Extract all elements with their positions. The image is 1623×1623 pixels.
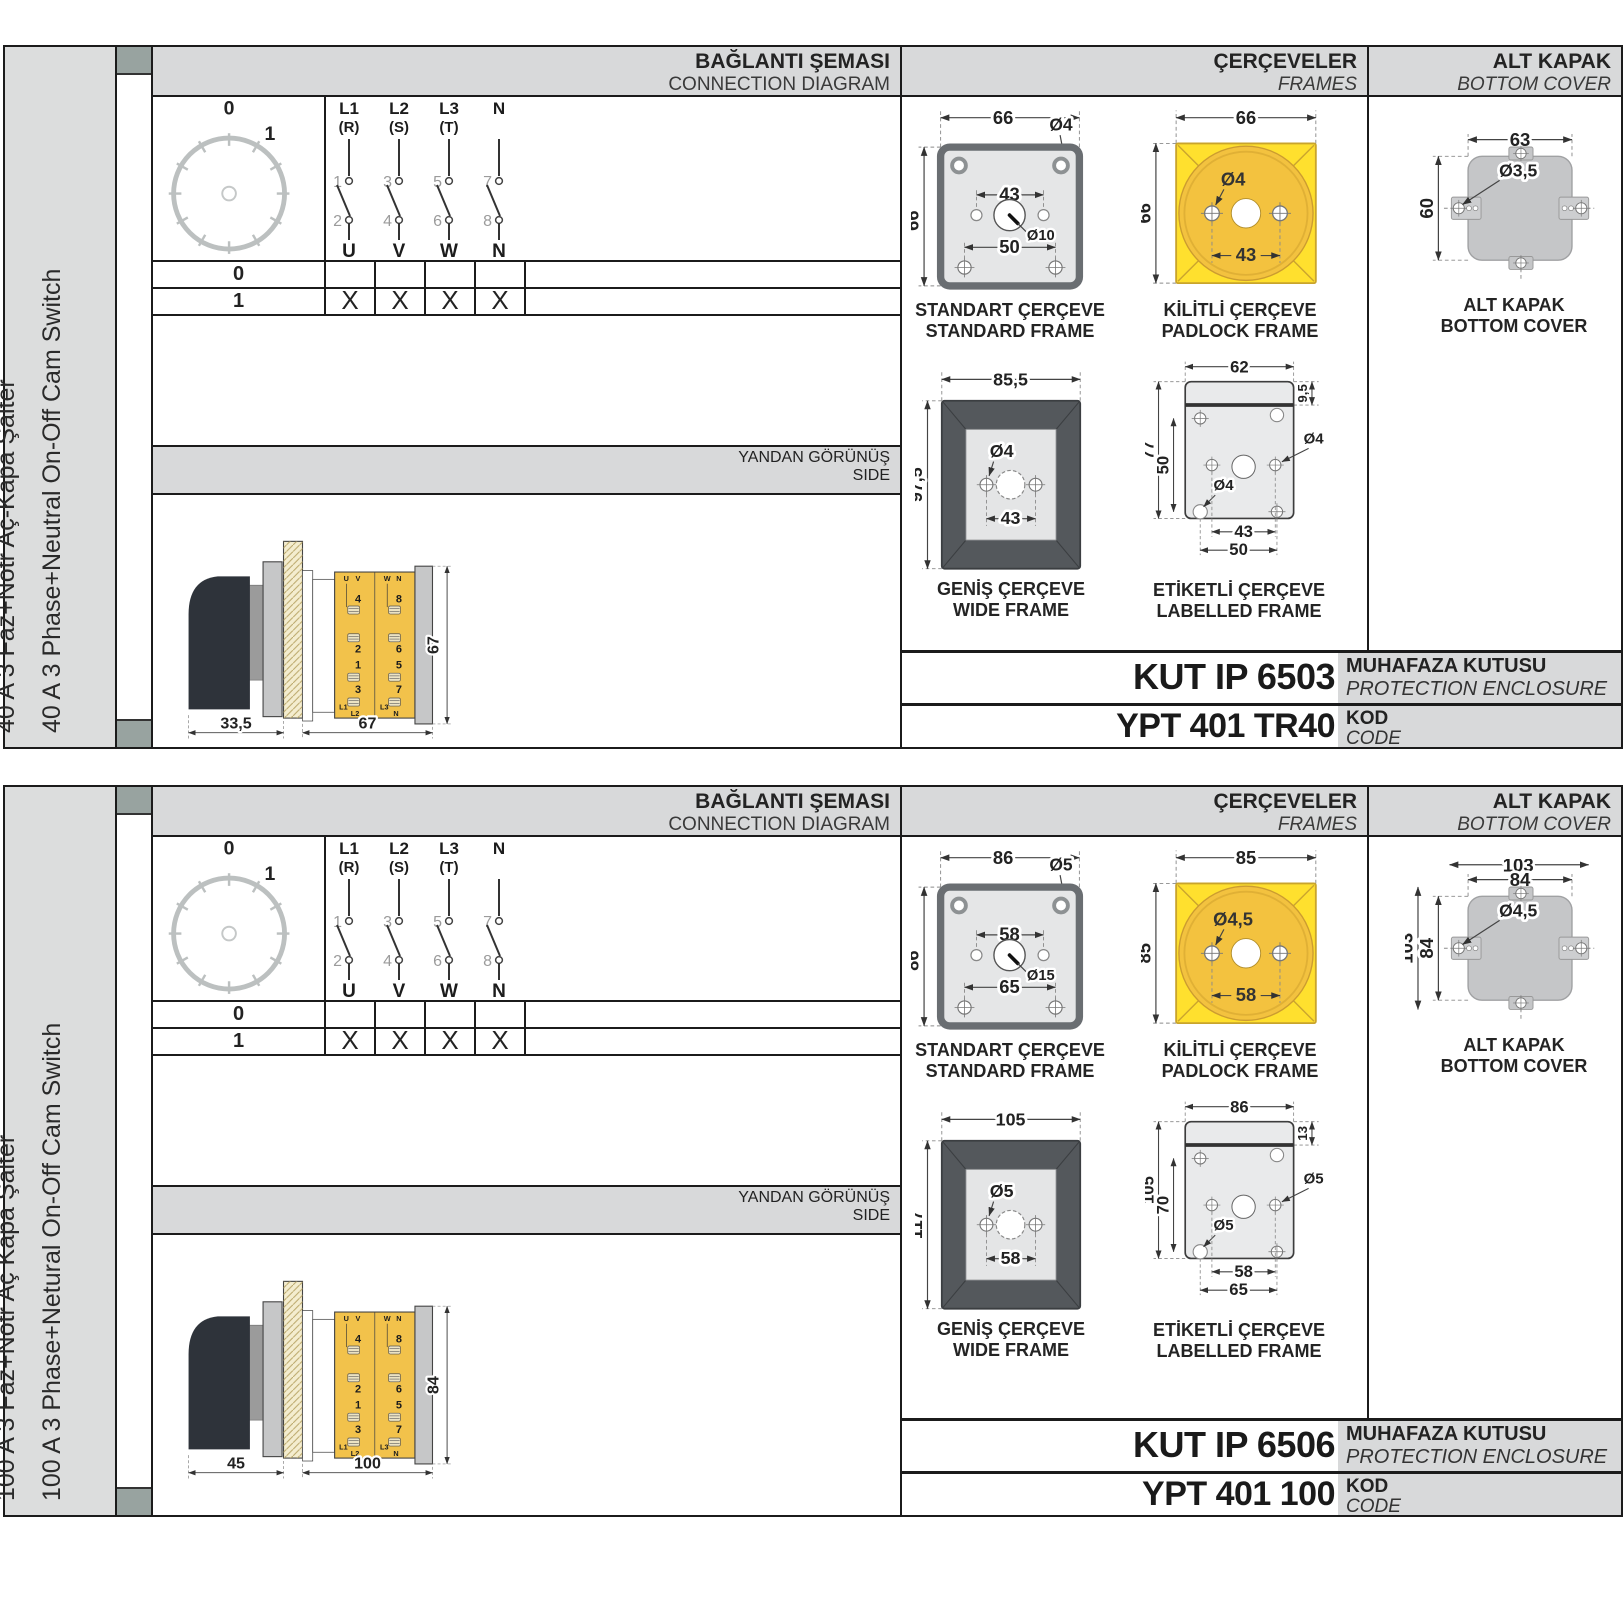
dim-frame-width: 66 — [1236, 107, 1256, 128]
enclosure-label: MUHAFAZA KUTUSU PROTECTION ENCLOSURE — [1338, 653, 1621, 703]
standard-frame-figure: 86 Ø5 86 58 Ø15 65 — [911, 843, 1109, 1082]
wide-frame-drawing: 105 117 Ø5 58 — [915, 1105, 1107, 1315]
dim-frame-height: 97,5 — [915, 467, 926, 502]
dim-screw-hole: Ø5 — [990, 1181, 1014, 1201]
dim-screw-span: 65 — [999, 976, 1019, 997]
svg-text:W: W — [384, 574, 391, 583]
order-code-row: YPT 401 100 KOD CODE — [900, 1471, 1621, 1515]
dim-handle-depth: 33,5 — [220, 714, 251, 732]
svg-text:6: 6 — [396, 643, 402, 655]
labelled-frame-drawing: 86 13 105 70 Ø5 Ø5 — [1145, 1095, 1333, 1316]
svg-text:8: 8 — [396, 1334, 402, 1346]
table-filler-cell — [526, 1002, 900, 1027]
svg-text:2: 2 — [333, 953, 342, 970]
contact-mark-cell: X — [476, 289, 526, 314]
svg-text:4: 4 — [383, 953, 392, 970]
dim-body-height: 84 — [424, 1376, 442, 1394]
dim-body-length: 100 — [354, 1454, 381, 1472]
side-view-header-en: SIDE — [153, 467, 890, 485]
enclosure-code-value: KUT IP 6503 — [900, 653, 1338, 703]
pole-l1: L1 (R) 1 2 U — [333, 839, 359, 1001]
dim-body-length: 67 — [359, 714, 377, 732]
dim-hole-right: Ø5 — [1304, 1170, 1324, 1187]
svg-text:8: 8 — [483, 213, 492, 230]
bottom-cover-caption: ALT KAPAK BOTTOM COVER — [1441, 1035, 1588, 1077]
dim-hole-right: Ø4 — [1304, 430, 1325, 447]
wide-frame-drawing: 85,5 97,5 Ø4 43 — [915, 365, 1107, 575]
svg-text:N: N — [492, 981, 506, 1001]
header-bottom-cover: ALT KAPAK BOTTOM COVER — [1367, 787, 1621, 837]
labelled-frame-drawing: 62 9,5 77 50 Ø4 Ø4 — [1145, 355, 1333, 576]
dim-hole-span: 58 — [1236, 984, 1256, 1005]
code-rows: KUT IP 6506 MUHAFAZA KUTUSU PROTECTION E… — [900, 1418, 1621, 1515]
bottom-cover-drawing: 103 103 84 84 — [1405, 859, 1623, 1031]
header-connection-tr: BAĞLANTI ŞEMASI — [153, 50, 890, 74]
panel-plate — [284, 541, 303, 718]
dial-position-1: 1 — [265, 863, 276, 885]
wide-frame-figure: 105 117 Ø5 58 GENİŞ ÇERÇEVE W — [915, 1105, 1107, 1361]
table-row-1: 1 X X X X — [153, 1027, 900, 1054]
enclosure-code-row: KUT IP 6506 MUHAFAZA KUTUSU PROTECTION E… — [900, 1418, 1621, 1471]
wide-frame-caption: GENİŞ ÇERÇEVE WIDE FRAME — [937, 1319, 1085, 1361]
product-title-tr: 100 A 3 Faz+Nötr Aç Kapa Şalter — [0, 1135, 21, 1501]
svg-text:N: N — [493, 839, 505, 858]
header-bottom-cover-en: BOTTOM COVER — [1369, 814, 1611, 836]
svg-text:L1: L1 — [339, 1442, 348, 1451]
svg-text:N: N — [396, 1314, 401, 1323]
svg-text:L3: L3 — [439, 99, 459, 118]
padlock-frame-caption: KİLİTLİ ÇERÇEVE PADLOCK FRAME — [1162, 1040, 1319, 1082]
svg-text:L3: L3 — [380, 1442, 389, 1451]
dim-frame-width: 66 — [993, 107, 1013, 128]
side-view-header-tr: YANDAN GÖRÜNÜŞ — [153, 449, 890, 467]
table-filler-cell — [526, 262, 900, 287]
padlock-frame-figure: 85 85 Ø4,5 58 KİLİT — [1141, 843, 1339, 1082]
bottom-cover-figure: 63 60 Ø3,5 ALT KAP — [1405, 119, 1623, 337]
binder-strip — [117, 47, 153, 747]
svg-text:U: U — [344, 574, 349, 583]
svg-text:8: 8 — [483, 953, 492, 970]
standard-frame-figure: 66 Ø4 66 43 Ø10 50 — [911, 103, 1109, 342]
dim-span-inner: 58 — [1234, 1262, 1253, 1281]
dial-position-0: 0 — [224, 98, 235, 120]
dim-inner-height: 50 — [1154, 456, 1173, 475]
svg-text:L2: L2 — [389, 839, 409, 858]
binder-tab-bottom — [117, 1487, 151, 1515]
table-row-0: 0 — [153, 262, 900, 287]
svg-text:1: 1 — [355, 1399, 361, 1411]
contact-mark-cell — [476, 1002, 526, 1027]
section-content: BAĞLANTI ŞEMASI CONNECTION DIAGRAM ÇERÇE… — [153, 47, 1621, 747]
header-bottom-cover-tr: ALT KAPAK — [1369, 50, 1611, 74]
contact-diagram: L1 (R) 1 2 U L2 (S) 3 4 V L3 ( — [324, 99, 529, 261]
svg-text:V: V — [393, 241, 406, 261]
svg-text:1: 1 — [355, 659, 361, 671]
labelled-frame-caption: ETİKETLİ ÇERÇEVE LABELLED FRAME — [1153, 1320, 1325, 1362]
dim-hole-left: Ø4 — [1214, 477, 1235, 494]
wide-frame-caption: GENİŞ ÇERÇEVE WIDE FRAME — [937, 579, 1085, 621]
svg-text:V: V — [356, 574, 361, 583]
svg-text:L1: L1 — [339, 839, 359, 858]
dim-frame-height: 66 — [1141, 203, 1154, 223]
svg-text:6: 6 — [433, 953, 442, 970]
side-view-header: YANDAN GÖRÜNÜŞ SIDE — [153, 1185, 900, 1235]
header-frames-en: FRAMES — [902, 74, 1357, 96]
standard-frame-drawing: 66 Ø4 66 43 Ø10 50 — [911, 103, 1109, 296]
contact-mark-cell: X — [476, 1029, 526, 1054]
contact-mark-cell — [426, 1002, 476, 1027]
svg-text:2: 2 — [333, 213, 342, 230]
dim-outer-height: 103 — [1405, 933, 1416, 964]
dim-center-hole: Ø15 — [1027, 968, 1055, 984]
svg-text:U: U — [342, 241, 356, 261]
dim-frame-width: 85 — [1236, 847, 1256, 868]
switch-body: U V W N 4 2 1 3 L1 L2 8 6 5 7 — [335, 572, 415, 718]
column-divider-1 — [900, 837, 902, 1515]
svg-text:5: 5 — [396, 659, 402, 671]
dim-span-inner: 43 — [1234, 522, 1253, 541]
standard-frame-drawing: 86 Ø5 86 58 Ø15 65 — [911, 843, 1109, 1036]
dim-frame-width: 105 — [996, 1110, 1026, 1130]
position-cell: 0 — [153, 1002, 326, 1027]
dial-position-0: 0 — [224, 838, 235, 860]
contact-mark-cell: X — [326, 1029, 376, 1054]
switch-position-table: 0 1 X X X X — [153, 260, 900, 316]
product-title-sidebar: 40 A 3 Faz+Nötr Aç-Kapa Şalter 40 A 3 Ph… — [5, 47, 117, 747]
bottom-cover-drawing: 63 60 Ø3,5 — [1405, 119, 1623, 291]
labelled-frame-figure: 62 9,5 77 50 Ø4 Ø4 — [1145, 355, 1333, 622]
side-view-header-tr: YANDAN GÖRÜNÜŞ — [153, 1189, 890, 1207]
side-view-header-en: SIDE — [153, 1207, 890, 1225]
switch-position-table: 0 1 X X X X — [153, 1000, 900, 1056]
pole-l2: L2 (S) 3 4 V — [383, 839, 409, 1001]
section-content: BAĞLANTI ŞEMASI CONNECTION DIAGRAM ÇERÇE… — [153, 787, 1621, 1515]
labelled-frame-figure: 86 13 105 70 Ø5 Ø5 — [1145, 1095, 1333, 1362]
switch-position-dial: 0 1 — [159, 97, 305, 258]
side-view-drawing: U V W N 4 2 1 3 L1 L2 8 6 5 7 — [168, 1239, 548, 1480]
header-connection-diagram: BAĞLANTI ŞEMASI CONNECTION DIAGRAM — [153, 787, 900, 837]
svg-text:N: N — [396, 574, 401, 583]
binder-tab-bottom — [117, 719, 151, 747]
panel-plate — [284, 1281, 303, 1458]
column-divider-2 — [1367, 97, 1369, 650]
pole-l2: L2 (S) 3 4 V — [383, 99, 409, 261]
table-row-0: 0 — [153, 1002, 900, 1027]
enclosure-label: MUHAFAZA KUTUSU PROTECTION ENCLOSURE — [1338, 1421, 1621, 1471]
svg-text:(T): (T) — [439, 859, 458, 876]
bottom-cover-figure: 103 103 84 84 — [1405, 859, 1623, 1077]
header-connection-en: CONNECTION DIAGRAM — [153, 814, 890, 836]
svg-text:6: 6 — [433, 213, 442, 230]
header-frames-tr: ÇERÇEVELER — [902, 790, 1357, 814]
svg-text:7: 7 — [396, 1424, 402, 1436]
padlock-frame-figure: 66 66 Ø4 43 KİLİTLİ — [1141, 103, 1339, 342]
svg-text:N: N — [492, 241, 506, 261]
header-frames: ÇERÇEVELER FRAMES — [900, 47, 1367, 97]
dim-span-outer: 65 — [1229, 1280, 1248, 1299]
contact-mark-cell — [326, 1002, 376, 1027]
product-section: 40 A 3 Faz+Nötr Aç-Kapa Şalter 40 A 3 Ph… — [3, 45, 1623, 749]
dim-frame-width: 86 — [993, 847, 1013, 868]
header-frames-tr: ÇERÇEVELER — [902, 50, 1357, 74]
svg-text:L3: L3 — [439, 839, 459, 858]
code-label: KOD CODE — [1338, 706, 1621, 747]
pole-n: N 7 8 N — [483, 839, 506, 1001]
header-connection-en: CONNECTION DIAGRAM — [153, 74, 890, 96]
dim-hole-left: Ø5 — [1214, 1217, 1234, 1234]
dim-screw-hole: Ø4 — [990, 441, 1014, 461]
svg-text:V: V — [356, 1314, 361, 1323]
svg-text:L1: L1 — [339, 702, 348, 711]
dim-screw-span: 50 — [999, 236, 1019, 257]
contact-mark-cell — [426, 262, 476, 287]
product-title-tr: 40 A 3 Faz+Nötr Aç-Kapa Şalter — [0, 379, 21, 733]
svg-text:7: 7 — [396, 684, 402, 696]
pole-l3: L3 (T) 5 6 W — [433, 99, 459, 261]
svg-text:(R): (R) — [339, 119, 360, 136]
contact-mark-cell: X — [326, 289, 376, 314]
dim-handle-depth: 45 — [227, 1454, 245, 1472]
svg-text:W: W — [384, 1314, 391, 1323]
svg-text:8: 8 — [396, 594, 402, 606]
table-row-1: 1 X X X X — [153, 287, 900, 314]
binder-strip — [117, 787, 153, 1515]
dim-body-height: 67 — [424, 636, 442, 654]
svg-text:W: W — [440, 981, 458, 1001]
svg-text:(S): (S) — [389, 119, 409, 136]
product-title-sidebar: 100 A 3 Faz+Nötr Aç Kapa Şalter 100 A 3 … — [5, 787, 117, 1515]
header-frames-en: FRAMES — [902, 814, 1357, 836]
svg-text:N: N — [493, 99, 505, 118]
product-title-en: 40 A 3 Phase+Neutral On-Off Cam Switch — [37, 269, 67, 733]
standard-frame-caption: STANDART ÇERÇEVE STANDARD FRAME — [915, 1040, 1105, 1082]
column-divider-2 — [1367, 837, 1369, 1418]
dim-frame-width: 62 — [1230, 358, 1249, 377]
svg-text:V: V — [393, 981, 406, 1001]
wide-frame-figure: 85,5 97,5 Ø4 43 GENİŞ ÇERÇEVE — [915, 365, 1107, 621]
enclosure-code-value: KUT IP 6506 — [900, 1421, 1338, 1471]
pole-l1: L1 (R) 1 2 U — [333, 99, 359, 261]
dim-center-hole: Ø10 — [1027, 228, 1055, 244]
dim-screw-hole: Ø4 — [1221, 169, 1246, 190]
enclosure-code-row: KUT IP 6503 MUHAFAZA KUTUSU PROTECTION E… — [900, 650, 1621, 703]
dim-hole-span: 58 — [1001, 1248, 1021, 1268]
header-connection-diagram: BAĞLANTI ŞEMASI CONNECTION DIAGRAM — [153, 47, 900, 97]
dial-position-1: 1 — [265, 123, 276, 145]
contact-mark-cell — [376, 1002, 426, 1027]
dim-hole-span: 43 — [1001, 508, 1021, 528]
padlock-frame-drawing: 85 85 Ø4,5 58 — [1141, 843, 1339, 1036]
contact-mark-cell — [476, 262, 526, 287]
dim-band-height: 13 — [1295, 1126, 1310, 1141]
dim-inner-height: 70 — [1154, 1196, 1173, 1215]
dim-frame-height: 86 — [911, 950, 923, 970]
dim-cover-hole: Ø4,5 — [1499, 901, 1537, 921]
mounting-plate — [263, 562, 282, 717]
switch-position-dial: 0 1 — [159, 837, 305, 998]
contact-mark-cell: X — [426, 1029, 476, 1054]
svg-text:(T): (T) — [439, 119, 458, 136]
svg-text:U: U — [344, 1314, 349, 1323]
position-cell: 1 — [153, 289, 326, 314]
svg-text:2: 2 — [355, 1383, 361, 1395]
order-code-value: YPT 401 TR40 — [900, 706, 1338, 747]
contact-mark-cell: X — [426, 289, 476, 314]
svg-text:4: 4 — [355, 594, 362, 606]
padlock-frame-caption: KİLİTLİ ÇERÇEVE PADLOCK FRAME — [1162, 300, 1319, 342]
product-section: 100 A 3 Faz+Nötr Aç Kapa Şalter 100 A 3 … — [3, 785, 1623, 1517]
standard-frame-caption: STANDART ÇERÇEVE STANDARD FRAME — [915, 300, 1105, 342]
contact-mark-cell — [326, 262, 376, 287]
header-connection-tr: BAĞLANTI ŞEMASI — [153, 790, 890, 814]
code-rows: KUT IP 6503 MUHAFAZA KUTUSU PROTECTION E… — [900, 650, 1621, 747]
dim-corner-hole: Ø4 — [1049, 115, 1073, 135]
svg-text:(S): (S) — [389, 859, 409, 876]
mounting-plate — [263, 1302, 282, 1457]
contact-mark-cell: X — [376, 1029, 426, 1054]
svg-text:5: 5 — [396, 1399, 402, 1411]
switch-body: U V W N 4 2 1 3 L1 L2 8 6 5 7 — [335, 1312, 415, 1458]
labelled-frame-caption: ETİKETLİ ÇERÇEVE LABELLED FRAME — [1153, 580, 1325, 622]
dim-frame-width: 85,5 — [993, 370, 1028, 390]
svg-text:(R): (R) — [339, 859, 360, 876]
svg-text:4: 4 — [383, 213, 392, 230]
table-filler-cell — [526, 289, 900, 314]
svg-text:L3: L3 — [380, 702, 389, 711]
svg-text:2: 2 — [355, 643, 361, 655]
svg-text:U: U — [342, 981, 356, 1001]
dim-frame-height: 85 — [1141, 943, 1154, 963]
dim-span-outer: 50 — [1229, 540, 1248, 559]
dim-screw-hole: Ø4,5 — [1213, 909, 1253, 930]
table-filler-cell — [526, 1029, 900, 1054]
dim-frame-height: 117 — [915, 1210, 926, 1239]
svg-text:N: N — [393, 709, 398, 718]
header-bottom-cover: ALT KAPAK BOTTOM COVER — [1367, 47, 1621, 97]
dim-corner-hole: Ø5 — [1049, 855, 1073, 875]
svg-text:4: 4 — [355, 1334, 362, 1346]
svg-text:3: 3 — [355, 684, 361, 696]
order-code-row: YPT 401 TR40 KOD CODE — [900, 703, 1621, 747]
binder-tab-top — [117, 787, 151, 815]
svg-text:W: W — [440, 241, 458, 261]
header-bottom-cover-tr: ALT KAPAK — [1369, 790, 1611, 814]
dim-hole-span: 43 — [1236, 244, 1256, 265]
header-frames: ÇERÇEVELER FRAMES — [900, 787, 1367, 837]
position-cell: 1 — [153, 1029, 326, 1054]
pole-n: N 7 8 N — [483, 99, 506, 261]
dim-cover-hole: Ø3,5 — [1499, 161, 1537, 181]
svg-text:L1: L1 — [339, 99, 359, 118]
pole-l3: L3 (T) 5 6 W — [433, 839, 459, 1001]
svg-text:L2: L2 — [389, 99, 409, 118]
order-code-value: YPT 401 100 — [900, 1474, 1338, 1515]
position-cell: 0 — [153, 262, 326, 287]
contact-mark-cell — [376, 262, 426, 287]
contact-diagram: L1 (R) 1 2 U L2 (S) 3 4 V L3 ( — [324, 839, 529, 1001]
switch-handle — [189, 576, 250, 709]
bottom-cover-caption: ALT KAPAK BOTTOM COVER — [1441, 295, 1588, 337]
svg-text:N: N — [393, 1449, 398, 1458]
dim-cover-height: 84 — [1416, 937, 1437, 958]
side-view-drawing: U V W N 4 2 1 3 L1 L2 8 6 5 7 — [168, 499, 548, 740]
code-label: KOD CODE — [1338, 1474, 1621, 1515]
contact-mark-cell: X — [376, 289, 426, 314]
binder-tab-top — [117, 47, 151, 75]
side-view-header: YANDAN GÖRÜNÜŞ SIDE — [153, 445, 900, 495]
dim-frame-width: 86 — [1230, 1098, 1249, 1117]
dim-cover-height: 60 — [1416, 198, 1437, 219]
padlock-frame-drawing: 66 66 Ø4 43 — [1141, 103, 1339, 296]
dim-frame-height: 66 — [911, 210, 923, 230]
svg-text:3: 3 — [355, 1424, 361, 1436]
switch-handle — [189, 1316, 250, 1449]
header-bottom-cover-en: BOTTOM COVER — [1369, 74, 1611, 96]
svg-text:6: 6 — [396, 1383, 402, 1395]
dim-band-height: 9,5 — [1295, 384, 1310, 403]
product-title-en: 100 A 3 Phase+Netural On-Off Cam Switch — [37, 1023, 67, 1501]
